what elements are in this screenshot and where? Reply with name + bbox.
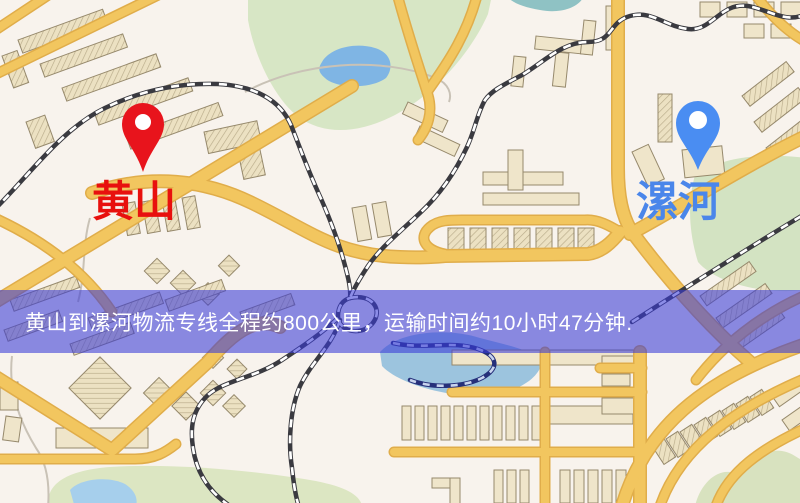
map-canvas[interactable]	[0, 0, 800, 503]
destination-pin-hole	[689, 111, 707, 129]
origin-label: 黄山	[92, 181, 176, 223]
origin-pin-icon[interactable]	[122, 103, 164, 172]
origin-pin-hole	[135, 114, 151, 130]
route-info-text: 黄山到漯河物流专线全程约800公里，运输时间约10小时47分钟.	[25, 307, 633, 337]
map-screenshot: 黄山 漯河 黄山到漯河物流专线全程约800公里，运输时间约10小时47分钟.	[0, 0, 800, 503]
route-info-banner: 黄山到漯河物流专线全程约800公里，运输时间约10小时47分钟.	[0, 290, 800, 353]
destination-label: 漯河	[636, 181, 720, 223]
pond	[505, 0, 585, 11]
